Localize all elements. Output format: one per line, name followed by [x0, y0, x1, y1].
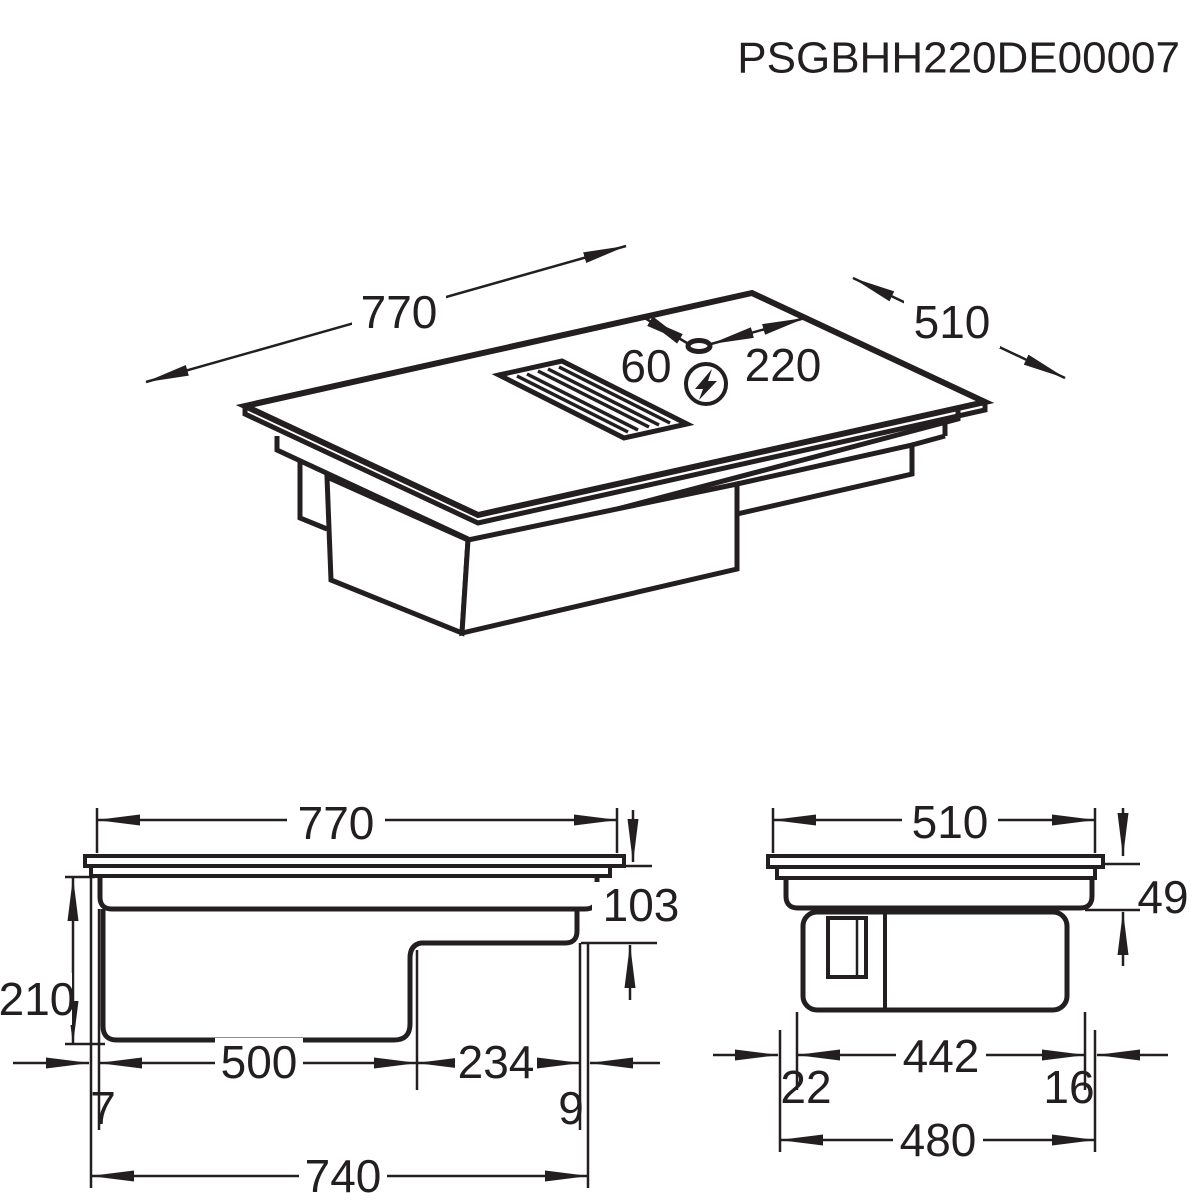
drawing-title: PSGBHH220DE00007: [737, 34, 1180, 83]
cable-gland-ellipse: [688, 341, 710, 352]
hob-dimension-diagram: PSGBHH220DE00007 770 510: [0, 0, 1200, 1200]
front-casing-width-value: 740: [305, 1150, 382, 1200]
iso-width-value: 770: [361, 286, 438, 338]
front-right-height-value: 103: [603, 879, 680, 931]
front-box-width-value: 500: [221, 1036, 298, 1088]
front-glass-plate: [85, 856, 624, 866]
side-casing-band: [786, 878, 1092, 908]
side-box-depth-value: 442: [903, 1030, 980, 1082]
iso-depth-value: 510: [914, 296, 991, 348]
side-depth-value: 510: [912, 796, 989, 848]
front-casing-box: [103, 909, 577, 1040]
gland-back-offset-value: 60: [620, 340, 671, 392]
front-left-inset-value: 7: [90, 1082, 116, 1134]
front-view: 770 210 103 500 234 7 9 740: [0, 797, 684, 1200]
gland-right-offset-value: 220: [745, 339, 822, 391]
front-width-value: 770: [298, 797, 375, 849]
front-casing-band: [100, 877, 597, 909]
front-right-inset-value: 9: [558, 1082, 584, 1134]
side-casing-depth-value: 480: [900, 1114, 977, 1166]
side-glass-plate: [768, 856, 1103, 867]
side-rim-height-value: 49: [1137, 871, 1188, 923]
front-height-value: 210: [0, 973, 75, 1025]
side-back-inset-value: 16: [1043, 1061, 1094, 1113]
side-view: 510 49 442 22 16 480: [713, 796, 1189, 1166]
side-casing-box: [803, 912, 1067, 1010]
dimension-drawing-page: PSGBHH220DE00007 770 510: [0, 0, 1200, 1200]
side-front-inset-value: 22: [780, 1061, 831, 1113]
side-duct-detail: [828, 918, 866, 977]
isometric-view: 770 510 60 220: [146, 246, 1065, 633]
front-right-section-value: 234: [458, 1036, 535, 1088]
